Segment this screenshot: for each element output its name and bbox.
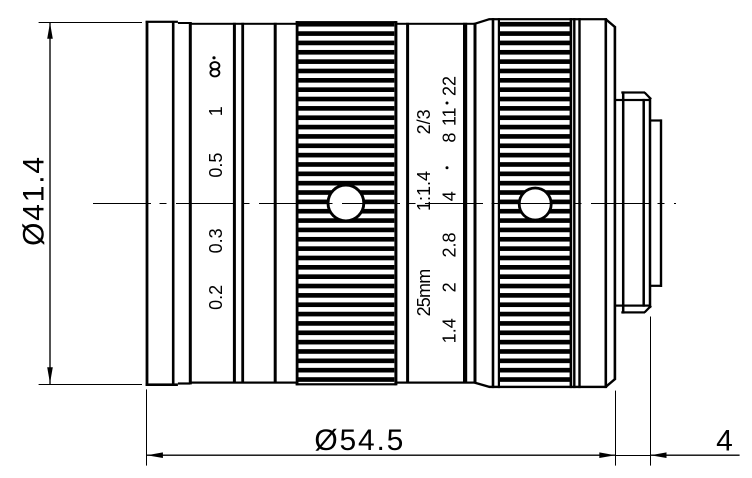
- svg-text:Ø41.4: Ø41.4: [18, 155, 51, 246]
- svg-text:1.4: 1.4: [439, 318, 459, 343]
- svg-text:Ø54.5: Ø54.5: [314, 424, 405, 457]
- svg-text:1:1.4: 1:1.4: [414, 171, 434, 211]
- svg-text:8: 8: [439, 133, 459, 143]
- svg-text:1: 1: [206, 106, 226, 116]
- svg-text:2: 2: [439, 282, 459, 292]
- svg-text:4: 4: [716, 425, 733, 458]
- svg-text:2/3: 2/3: [414, 109, 434, 134]
- svg-text:0.2: 0.2: [206, 285, 226, 310]
- svg-text:22: 22: [439, 76, 459, 96]
- svg-text:25mm: 25mm: [414, 270, 434, 317]
- svg-text:0.3: 0.3: [206, 228, 226, 253]
- svg-text:2.8: 2.8: [439, 232, 459, 257]
- svg-text:0.5: 0.5: [206, 153, 226, 178]
- svg-text:11: 11: [439, 107, 459, 126]
- svg-text:4: 4: [439, 191, 459, 201]
